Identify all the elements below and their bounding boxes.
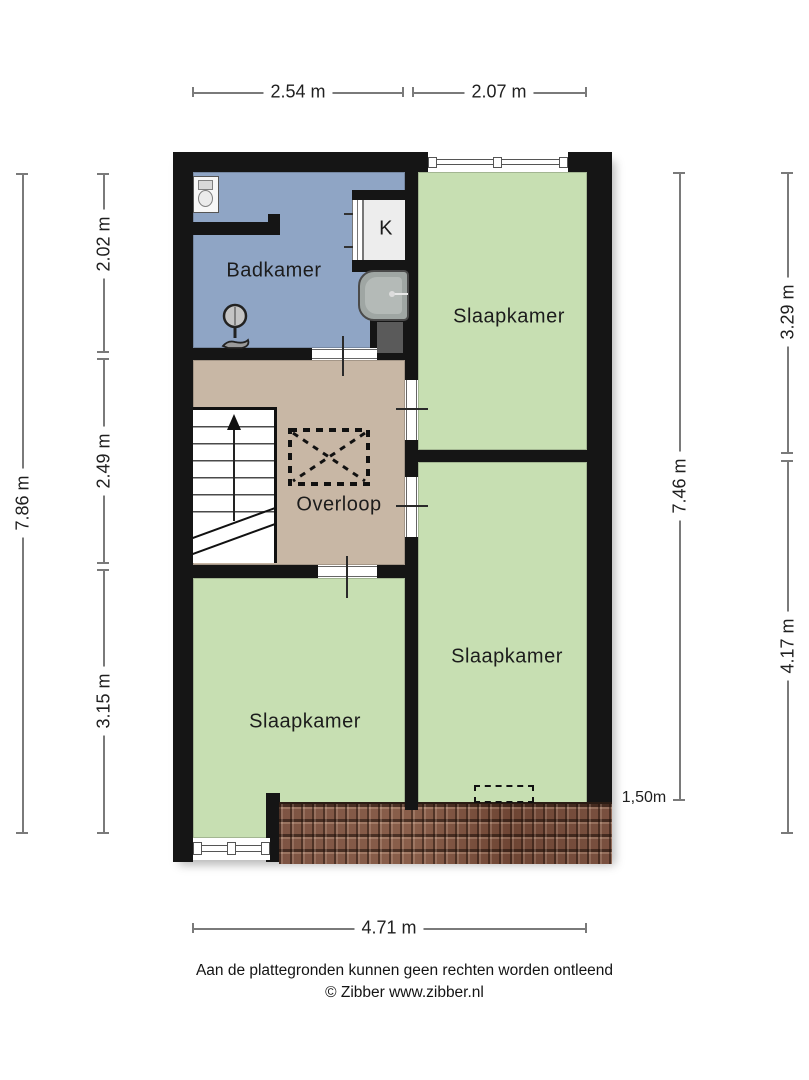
closet-door-tick xyxy=(344,246,353,248)
tick xyxy=(192,923,194,933)
door-slaapkamer-bottom-right xyxy=(405,477,418,537)
tick xyxy=(97,569,109,571)
wall-bedrooms-divider xyxy=(405,450,612,462)
wall-closet-north xyxy=(352,190,405,200)
dormer-outline xyxy=(474,785,534,803)
label-overloop: Overloop xyxy=(296,494,381,517)
dim-label-left-bedroom: 3.15 m xyxy=(94,666,115,735)
tick xyxy=(781,172,793,174)
wall-toilet-partition-cap xyxy=(268,214,280,224)
label-badkamer: Badkamer xyxy=(226,260,321,283)
room-slaapkamer-bottom-left xyxy=(193,578,405,838)
tick xyxy=(781,832,793,834)
door-slaapkamer-bottom-left-leaf xyxy=(346,556,348,598)
tick xyxy=(97,358,109,360)
shower-icon xyxy=(218,302,256,352)
dim-label-right-top: 3.29 m xyxy=(778,277,799,346)
tick xyxy=(673,799,685,801)
footer-disclaimer: Aan de plattegronden kunnen geen rechten… xyxy=(0,962,809,980)
dim-label-bottom: 4.71 m xyxy=(354,918,423,939)
dim-label-left-total: 7.86 m xyxy=(13,468,34,537)
label-slaapkamer-bottom-left: Slaapkamer xyxy=(249,711,361,734)
door-slaapkamer-top-right-leaf xyxy=(396,408,428,410)
label-slaapkamer-bottom-right: Slaapkamer xyxy=(451,646,563,669)
door-badkamer-leaf xyxy=(342,336,344,376)
dim-label-right-inner: 7.46 m xyxy=(670,451,691,520)
wall-landing-south xyxy=(173,565,418,578)
wall-toilet-partition xyxy=(193,222,280,235)
tick xyxy=(673,172,685,174)
sink-icon xyxy=(358,270,409,321)
closet-door-tick xyxy=(344,213,353,215)
shaft-duct xyxy=(377,322,403,353)
tick xyxy=(585,87,587,97)
tick xyxy=(192,87,194,97)
closet-door xyxy=(352,200,364,260)
floorplan-page: 2.54 m 2.07 m 7.86 m 2.02 m 2.49 m 3.15 … xyxy=(0,0,809,1080)
window-top xyxy=(428,152,568,172)
tick xyxy=(16,832,28,834)
room-slaapkamer-bottom-right xyxy=(418,462,587,810)
stairs-up-arrow-icon xyxy=(227,414,241,430)
tick xyxy=(585,923,587,933)
label-slaapkamer-top-right: Slaapkamer xyxy=(453,306,565,329)
tick xyxy=(412,87,414,97)
tick xyxy=(16,173,28,175)
dim-label-top-left: 2.54 m xyxy=(263,82,332,103)
door-badkamer xyxy=(312,348,377,360)
roof-section xyxy=(279,802,612,864)
toilet-icon xyxy=(193,176,219,213)
tick xyxy=(402,87,404,97)
door-slaapkamer-bottom-right-leaf xyxy=(396,505,428,507)
dim-label-left-bathroom: 2.02 m xyxy=(94,209,115,278)
tick xyxy=(781,460,793,462)
dim-label-top-right: 2.07 m xyxy=(464,82,533,103)
window-bottom-left xyxy=(193,838,270,860)
tick xyxy=(97,832,109,834)
staircase xyxy=(193,407,277,563)
stairs-direction-line xyxy=(233,426,235,521)
wall-right xyxy=(587,152,612,862)
footer-copyright: © Zibber www.zibber.nl xyxy=(0,984,809,1002)
wall-left xyxy=(173,152,193,862)
tick xyxy=(97,351,109,353)
dim-label-right-bottom: 4.17 m xyxy=(778,611,799,680)
door-slaapkamer-bottom-left xyxy=(318,565,377,578)
door-slaapkamer-top-right xyxy=(405,380,418,440)
tick xyxy=(781,452,793,454)
stair-break-line xyxy=(192,523,275,555)
label-closet-k: K xyxy=(379,218,393,241)
tick xyxy=(97,562,109,564)
tick xyxy=(97,173,109,175)
dim-label-left-landing: 2.49 m xyxy=(94,426,115,495)
loft-hatch-icon xyxy=(287,427,371,487)
dim-label-roof-depth: 1,50m xyxy=(622,789,666,807)
